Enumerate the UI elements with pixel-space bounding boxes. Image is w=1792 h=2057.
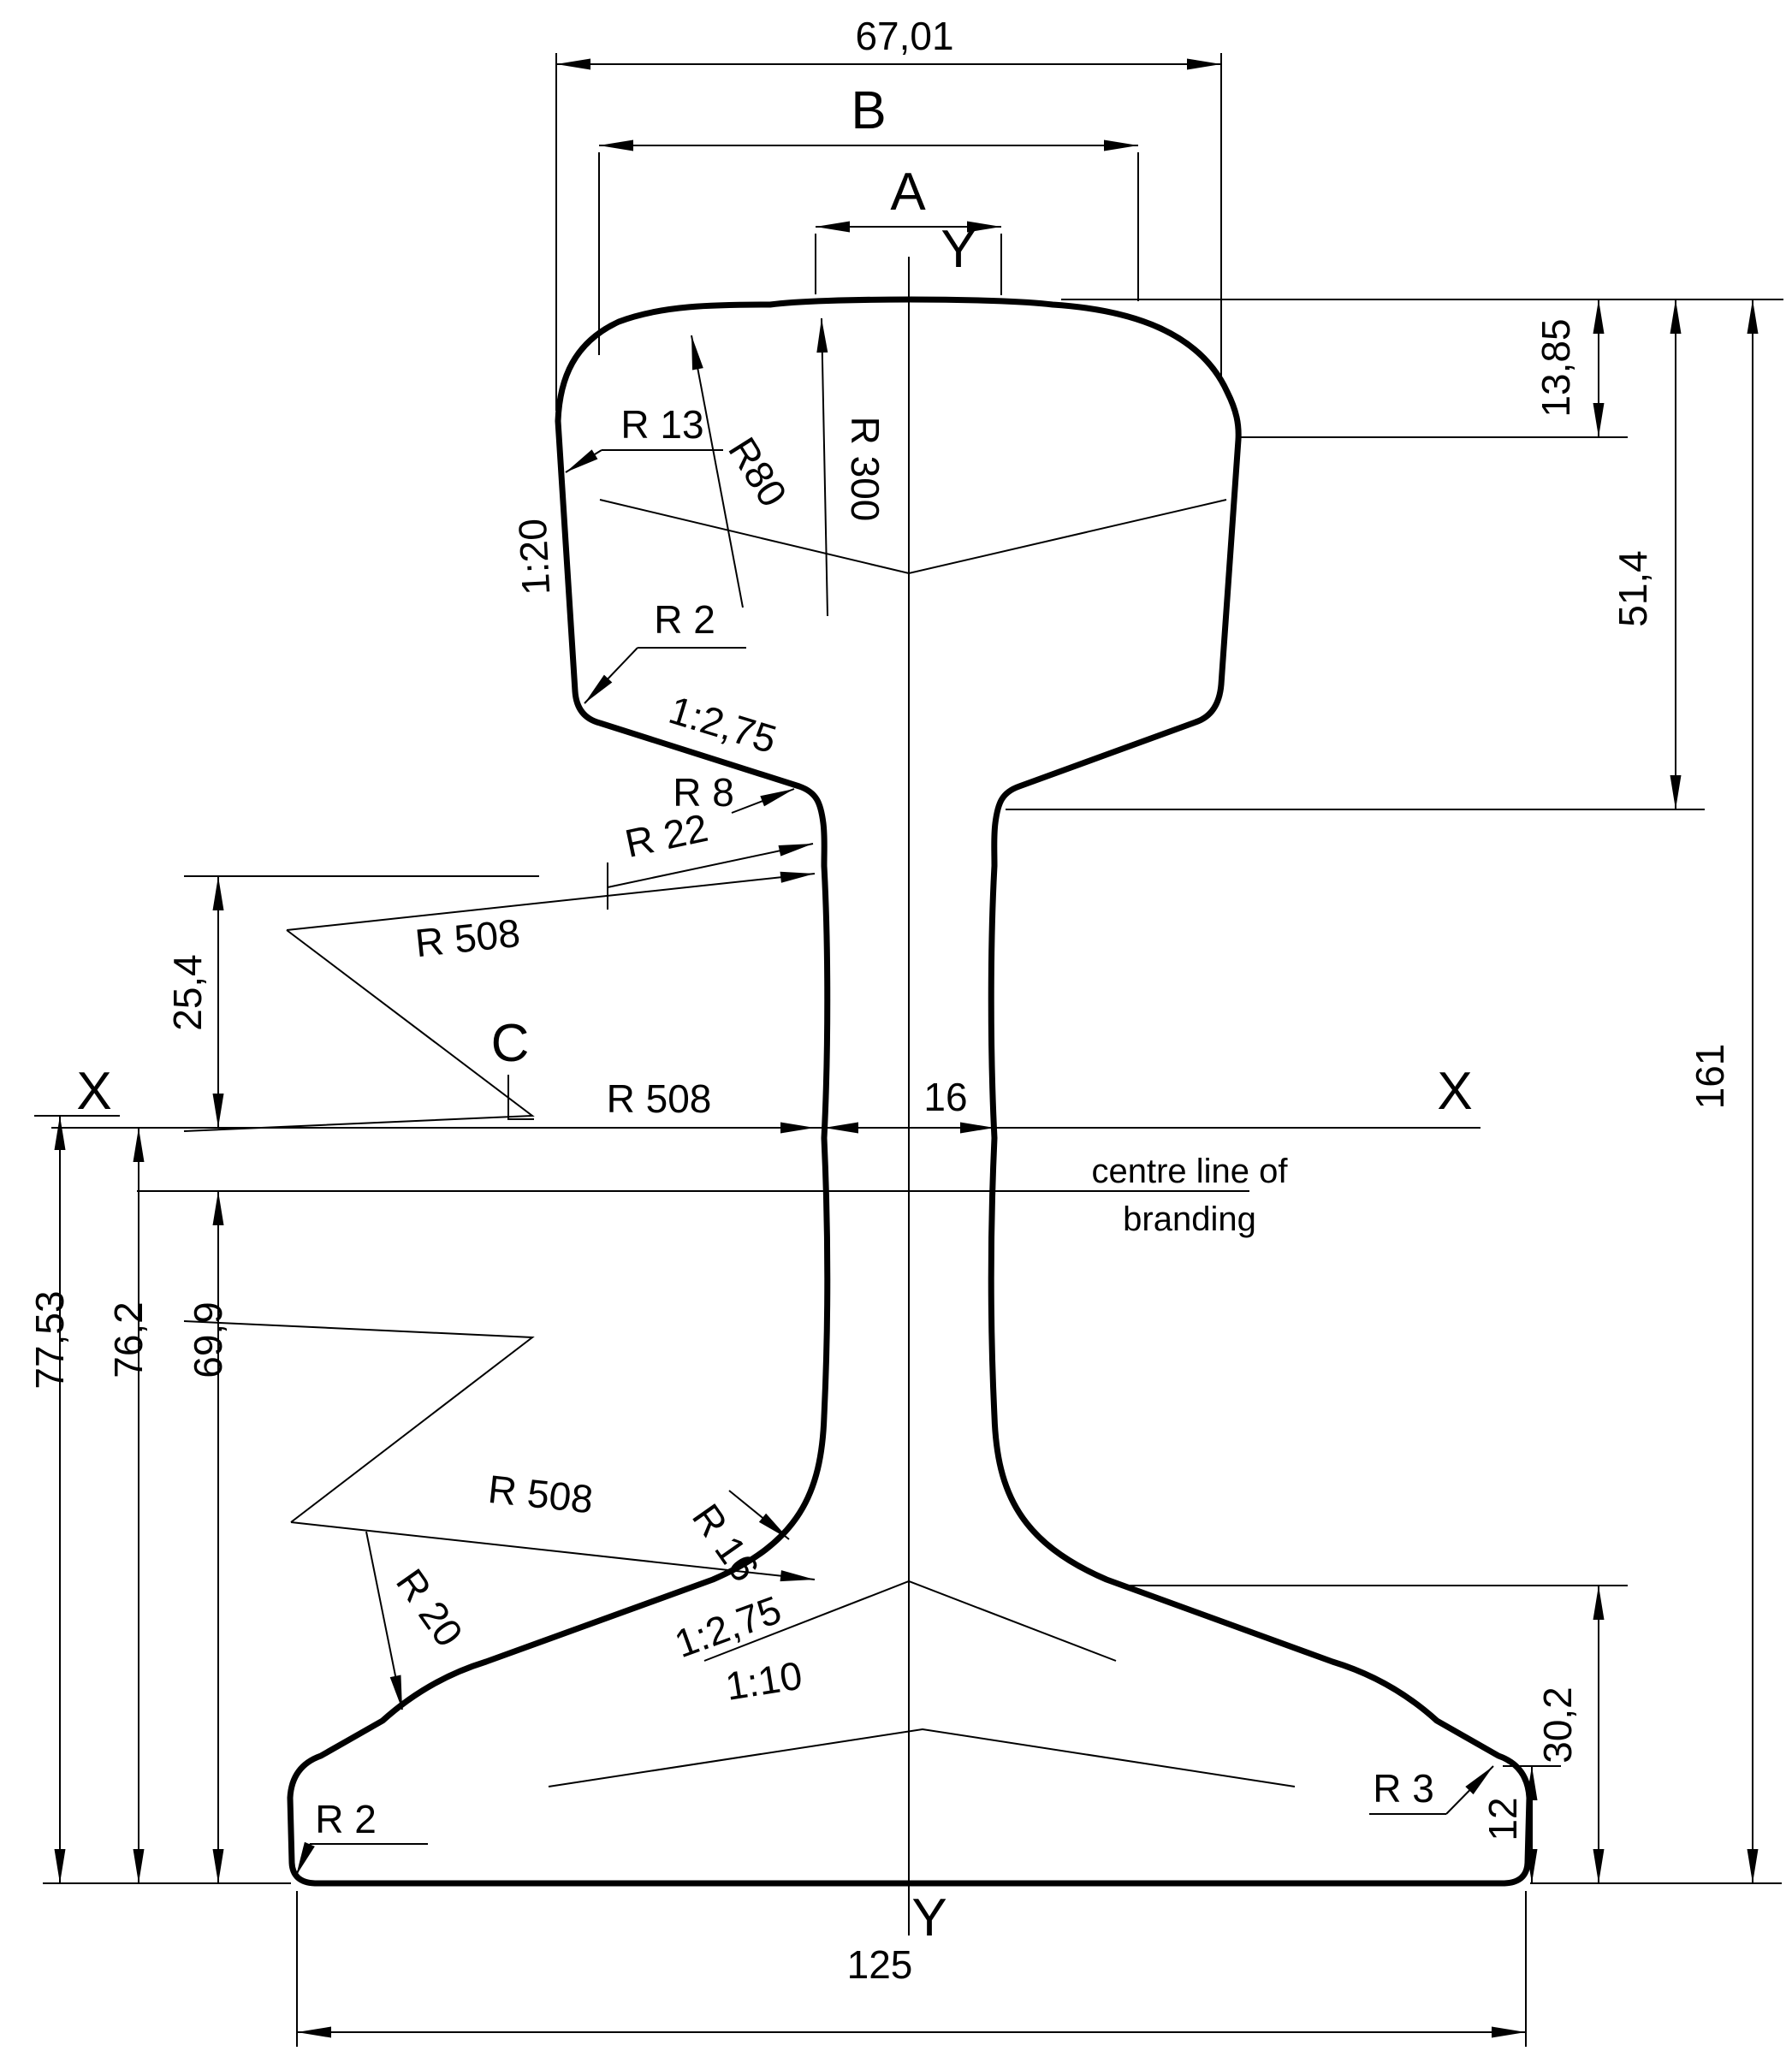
label-76-2: 76,2 xyxy=(106,1301,151,1378)
label-r3: R 3 xyxy=(1373,1766,1434,1811)
label-branding-line-2: branding xyxy=(1123,1200,1256,1238)
label-r16: R 16 xyxy=(684,1496,768,1589)
construction-lines xyxy=(34,257,1783,1935)
label-branding-line-1: centre line of xyxy=(1091,1153,1288,1190)
label-web-thickness: 16 xyxy=(923,1075,967,1119)
foot-slope-1-10-line xyxy=(549,1729,1295,1787)
label-axis-y-top: Y xyxy=(941,220,976,279)
leader-r2-foot-arrow xyxy=(296,1844,310,1876)
label-axis-x-left: X xyxy=(76,1062,111,1121)
label-slope-foot-1-10: 1:10 xyxy=(722,1653,805,1709)
label-r22: R 22 xyxy=(621,805,712,866)
leader-r13-arrow xyxy=(566,450,602,472)
leader-r20 xyxy=(366,1532,402,1710)
label-77-53: 77,53 xyxy=(27,1290,72,1389)
label-r20: R 20 xyxy=(388,1561,472,1654)
label-r2-foot: R 2 xyxy=(315,1797,377,1841)
leader-lines xyxy=(296,318,1493,1876)
label-25-4: 25,4 xyxy=(165,954,210,1031)
label-r300: R 300 xyxy=(843,417,887,522)
head-underside-construction-v xyxy=(600,500,1226,573)
label-r8: R 8 xyxy=(673,770,734,815)
point-c-mark xyxy=(508,1075,534,1119)
labels: 67,01 B A Y R 13 R80 R 300 1:20 R 2 1:2,… xyxy=(27,14,1732,1987)
r508-upper-zigzag xyxy=(184,930,532,1131)
extension-lines xyxy=(297,53,1526,2047)
label-13-85: 13,85 xyxy=(1534,318,1578,417)
leader-r8 xyxy=(732,789,794,813)
label-r80: R80 xyxy=(720,430,796,514)
drawing-canvas: 67,01 B A Y R 13 R80 R 300 1:20 R 2 1:2,… xyxy=(0,0,1792,2057)
label-slope-foot-1-275: 1:2,75 xyxy=(669,1587,787,1667)
label-axis-x-right: X xyxy=(1437,1062,1472,1121)
r508-lower-zigzag xyxy=(184,1321,532,1522)
label-12: 12 xyxy=(1480,1797,1525,1841)
leader-r2-head-arrow xyxy=(584,648,638,703)
label-69-9: 69,9 xyxy=(186,1301,230,1378)
label-r508-mid: R 508 xyxy=(607,1076,712,1121)
label-r508-lower: R 508 xyxy=(486,1467,596,1522)
rail-profile-drawing: 67,01 B A Y R 13 R80 R 300 1:20 R 2 1:2,… xyxy=(0,0,1792,2057)
label-head-width: 67,01 xyxy=(855,14,953,58)
label-dim-a: A xyxy=(890,163,926,222)
label-foot-width: 125 xyxy=(847,1942,913,1987)
label-51-4: 51,4 xyxy=(1611,550,1655,627)
dimension-lines xyxy=(60,64,1753,2032)
label-r2-head: R 2 xyxy=(654,597,715,642)
r508-upper-leader xyxy=(287,874,815,930)
label-slope-1-20: 1:20 xyxy=(510,518,559,596)
label-r13: R 13 xyxy=(620,402,703,447)
label-axis-y-bottom: Y xyxy=(911,1888,946,1947)
label-r508-upper: R 508 xyxy=(413,910,523,966)
label-161: 161 xyxy=(1688,1044,1732,1110)
label-30-2: 30,2 xyxy=(1535,1687,1580,1764)
label-dim-b: B xyxy=(851,81,886,140)
leader-r300 xyxy=(822,318,828,616)
label-point-c: C xyxy=(491,1014,530,1073)
